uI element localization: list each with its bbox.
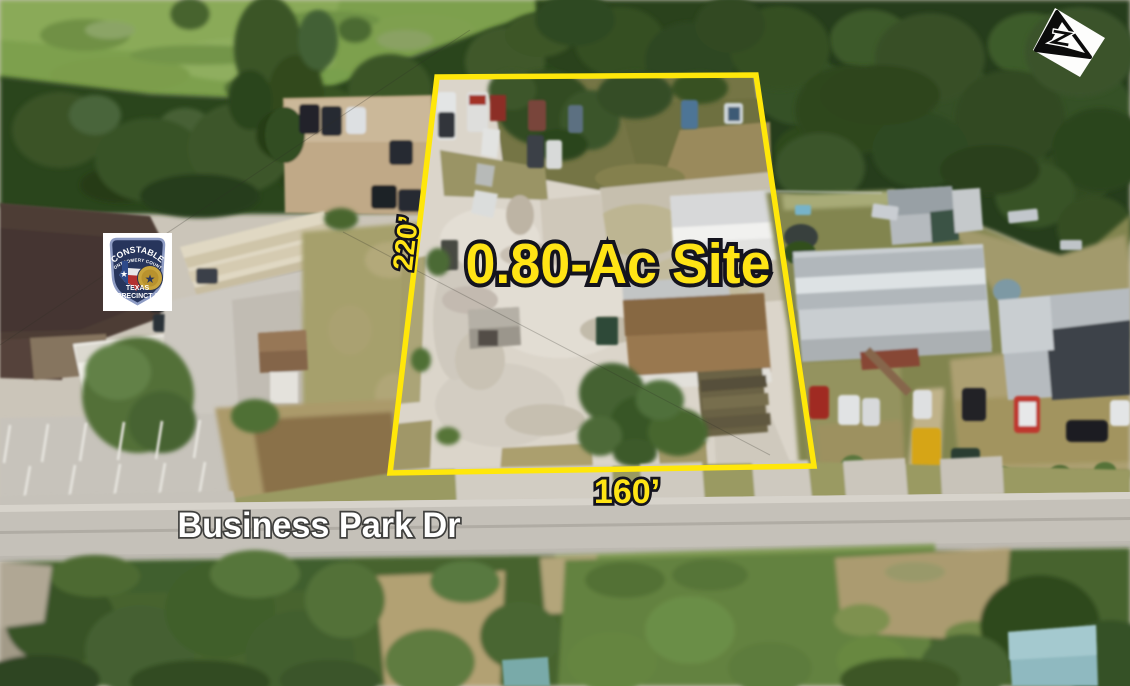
svg-text:160’: 160’ xyxy=(594,473,660,511)
svg-text:Business Park Dr: Business Park Dr xyxy=(178,506,461,545)
svg-text:220’: 220’ xyxy=(387,214,424,272)
svg-text:PRECINCT 1: PRECINCT 1 xyxy=(117,293,159,300)
svg-text:0.80-Ac Site: 0.80-Ac Site xyxy=(466,232,771,296)
svg-text:★: ★ xyxy=(120,269,128,279)
svg-text:TEXAS: TEXAS xyxy=(126,285,150,292)
svg-text:★: ★ xyxy=(145,272,156,286)
